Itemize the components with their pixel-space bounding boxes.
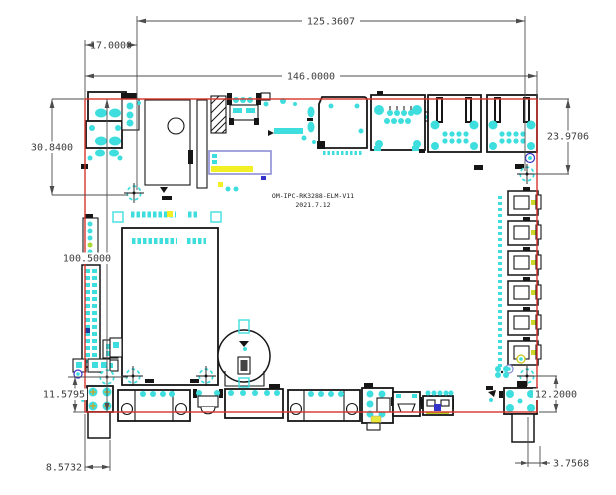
coin-battery <box>218 320 270 387</box>
dim-bottom-right-horizontal: 3.7568 <box>515 459 589 470</box>
dim-label-bottom-left-horizontal: 8.5732 <box>46 463 82 474</box>
lvds-connector-highlight <box>209 151 271 192</box>
mount-hole-top-left <box>124 183 144 203</box>
ethernet-rj45 <box>371 91 425 153</box>
dim-bottom-left-horizontal: 8.5732 <box>42 461 110 473</box>
dim-label-bottom-right-horizontal: 3.7568 <box>553 459 589 470</box>
dim-left-top-height: 30.8400 <box>29 99 75 195</box>
dim-bottom-left-vertical: 11.5795 <box>41 377 87 412</box>
dim-label-left-top-height: 30.8400 <box>31 143 73 154</box>
dim-label-right-top-height: 23.9706 <box>547 132 589 143</box>
right-io-column <box>500 187 541 373</box>
terminal-block-2 <box>225 384 283 418</box>
drawing-svg: 125.3607 17.0000 146.0000 30.8400 100.50… <box>0 0 616 495</box>
hatched-shield <box>211 96 226 133</box>
terminal-block-3 <box>288 390 360 421</box>
som-module <box>110 211 221 386</box>
pcb-dimension-drawing: 125.3607 17.0000 146.0000 30.8400 100.50… <box>0 0 616 495</box>
dim-label-edge-to-first-hole: 17.0000 <box>90 41 132 52</box>
dim-board-width: 146.0000 <box>85 71 537 83</box>
dim-label-bottom-right-vertical: 12.2000 <box>535 390 577 401</box>
dim-bottom-right-vertical: 12.2000 <box>533 376 579 412</box>
heatsink-shield <box>145 100 207 200</box>
board-title: OM-IPC-RK3288-ELM-V11 2021.7.12 <box>272 192 354 209</box>
board-date-text: 2021.7.12 <box>295 201 330 209</box>
dim-label-top-hole-span: 125.3607 <box>307 17 355 28</box>
dim-right-top-height: 23.9706 <box>545 99 592 174</box>
dim-label-bottom-left-vertical: 11.5795 <box>43 390 85 401</box>
terminal-block-1 <box>118 390 190 421</box>
top-micro-usb <box>227 93 261 125</box>
dim-top-hole-span: 125.3607 <box>137 16 525 28</box>
hdmi-connector <box>317 97 367 153</box>
dim-edge-to-first-hole: 17.0000 <box>85 40 137 52</box>
bottom-right-connector <box>486 366 537 442</box>
dim-label-board-height: 100.5000 <box>63 254 111 265</box>
pin-connector <box>362 383 393 430</box>
board-label-text: OM-IPC-RK3288-ELM-V11 <box>272 192 354 200</box>
dc-power-jack <box>81 92 126 169</box>
usb-stack-left <box>428 95 483 170</box>
buzzer <box>193 389 223 414</box>
dim-label-board-width: 146.0000 <box>287 72 335 83</box>
